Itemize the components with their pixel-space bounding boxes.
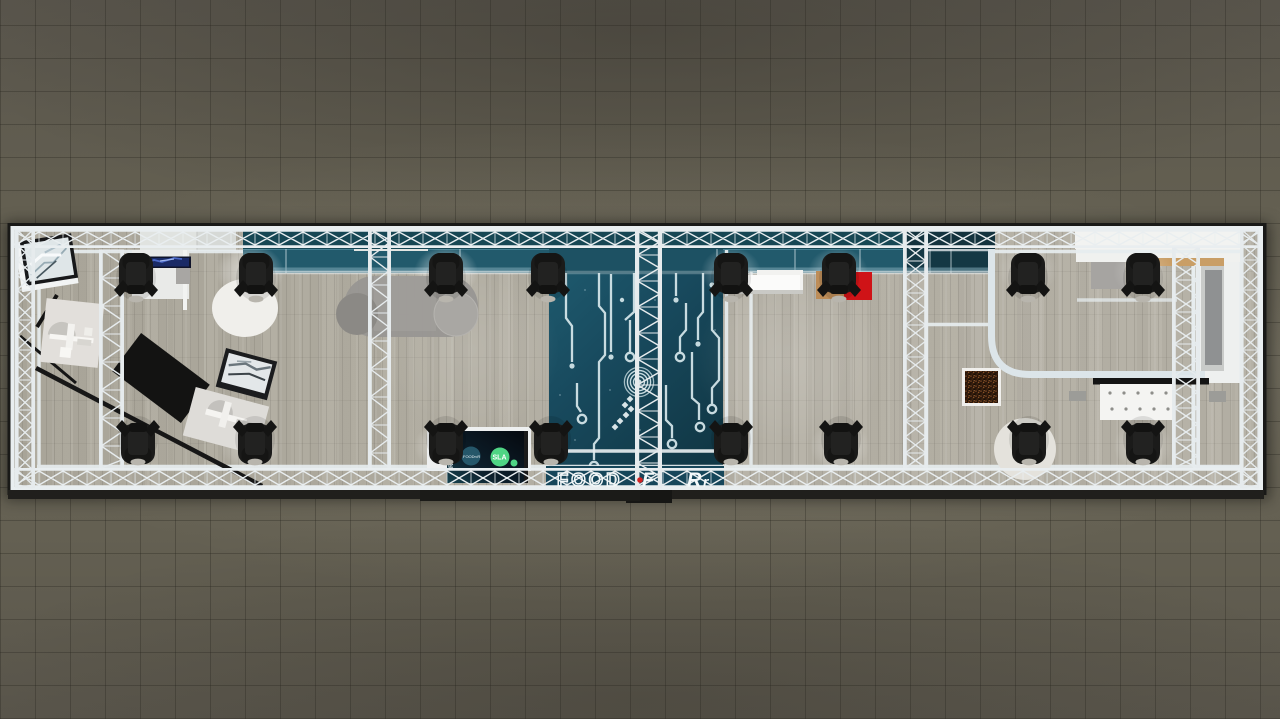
- svg-text:FOOD▪•R: FOOD▪•R: [463, 454, 480, 459]
- svg-text:F: F: [642, 470, 655, 492]
- svg-text:R: R: [687, 470, 702, 492]
- svg-text:SLA: SLA: [493, 455, 507, 462]
- svg-text:FOOD: FOOD: [557, 469, 622, 490]
